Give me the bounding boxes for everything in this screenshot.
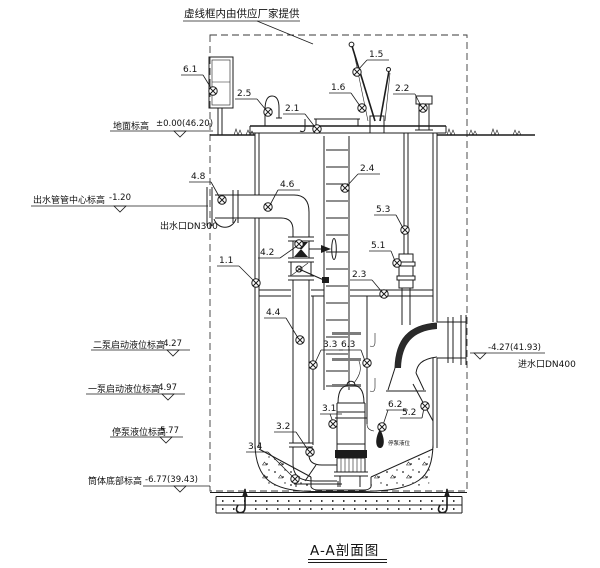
svg-text:3.4: 3.4 bbox=[248, 442, 263, 452]
ground-label: 地面标高 bbox=[113, 120, 149, 132]
svg-text:5.1: 5.1 bbox=[371, 241, 385, 251]
callout-5-2: 5.2 bbox=[400, 408, 424, 418]
supplier-note: 虚线框内由供应厂家提供 bbox=[183, 7, 313, 44]
svg-text:6.3: 6.3 bbox=[341, 340, 355, 350]
callout-5-3: 5.3 bbox=[374, 205, 403, 228]
svg-text:2.3: 2.3 bbox=[352, 270, 366, 280]
elevation-ground: 地面标高 ±0.00(46.20) bbox=[110, 119, 213, 137]
outlet-center-label: 出水管管中心标高 bbox=[33, 194, 105, 206]
callout-1-6: 1.6 bbox=[329, 83, 360, 106]
supplier-scope-box bbox=[210, 35, 467, 491]
callouts: 6.1 2.5 2.1 1.5 1.6 2.2 4.8 4.6 2.4 5.3 … bbox=[181, 50, 424, 477]
inlet-port-label: 进水口DN400 bbox=[518, 358, 576, 370]
vent-pipe bbox=[415, 96, 433, 130]
callout-6-1: 6.1 bbox=[181, 65, 211, 88]
svg-text:2.1: 2.1 bbox=[285, 104, 299, 114]
svg-text:2.2: 2.2 bbox=[395, 84, 409, 94]
svg-text:3.2: 3.2 bbox=[276, 422, 290, 432]
svg-text:5.2: 5.2 bbox=[402, 408, 416, 418]
elevation-inlet: -4.27(41.93) 进水口DN400 bbox=[470, 343, 576, 370]
section-drawing: 虚线框内由供应厂家提供 bbox=[0, 0, 600, 568]
svg-text:4.6: 4.6 bbox=[280, 180, 295, 190]
float-tag-text: 停泵液位 bbox=[388, 439, 411, 447]
anchor-bolt-right bbox=[438, 488, 450, 513]
foundation bbox=[210, 493, 467, 514]
drawing-title: A-A剖面图 bbox=[308, 543, 387, 563]
svg-text:4.2: 4.2 bbox=[260, 248, 274, 258]
outlet-pipe bbox=[207, 187, 309, 237]
svg-text:6.2: 6.2 bbox=[388, 400, 402, 410]
callout-5-1: 5.1 bbox=[369, 241, 395, 261]
elevation-outlet-center: 出水管管中心标高 -1.20 bbox=[31, 193, 208, 212]
tank-bottom-label: 筒体底部标高 bbox=[88, 475, 142, 487]
elevation-pump-stop: 停泵液位标高 -5.77 bbox=[110, 426, 183, 443]
pump1-start-value: -4.97 bbox=[155, 383, 177, 393]
tank-cover bbox=[250, 119, 446, 133]
outlet-port-label: 出水口DN300 bbox=[160, 220, 218, 232]
svg-text:2.4: 2.4 bbox=[360, 164, 375, 174]
float-cable: 停泵液位 bbox=[367, 296, 411, 448]
tank-bottom-value: -6.77(39.43) bbox=[145, 475, 198, 485]
callout-4-2: 4.2 bbox=[258, 246, 297, 258]
pump2-start-value: -4.27 bbox=[160, 339, 182, 349]
anchor-bolt-left bbox=[236, 488, 248, 513]
svg-text:1.6: 1.6 bbox=[331, 83, 346, 93]
pump-stop-value: -5.77 bbox=[157, 426, 179, 436]
svg-text:6.1: 6.1 bbox=[183, 65, 197, 75]
callout-1-1: 1.1 bbox=[217, 256, 254, 281]
inlet-value: -4.27(41.93) bbox=[488, 343, 541, 353]
supplier-note-text: 虚线框内由供应厂家提供 bbox=[184, 7, 300, 20]
svg-text:1.1: 1.1 bbox=[219, 256, 233, 266]
svg-text:1.5: 1.5 bbox=[369, 50, 383, 60]
callout-markers bbox=[209, 68, 429, 483]
outlet-center-value: -1.20 bbox=[109, 193, 131, 203]
svg-text:5.3: 5.3 bbox=[376, 205, 390, 215]
access-ladder bbox=[324, 136, 349, 390]
svg-text:2.5: 2.5 bbox=[237, 89, 251, 99]
svg-text:4.8: 4.8 bbox=[191, 172, 206, 182]
callout-2-4: 2.4 bbox=[347, 164, 380, 186]
callout-2-5: 2.5 bbox=[235, 89, 266, 110]
drawing-title-text: A-A剖面图 bbox=[310, 543, 379, 559]
callout-3-1: 3.1 bbox=[320, 404, 342, 422]
svg-text:3.3: 3.3 bbox=[323, 340, 337, 350]
callout-2-2: 2.2 bbox=[393, 84, 421, 106]
mid-platform bbox=[259, 290, 433, 296]
submersible-pump bbox=[334, 361, 368, 487]
callout-2-3: 2.3 bbox=[350, 270, 382, 292]
elevation-pump2-start: 二泵启动液位标高 -4.27 bbox=[91, 339, 190, 356]
elevation-pump1-start: 一泵启动液位标高 -4.97 bbox=[86, 383, 185, 400]
svg-text:3.1: 3.1 bbox=[322, 404, 336, 414]
callout-4-6: 4.6 bbox=[270, 180, 300, 205]
callout-4-8: 4.8 bbox=[189, 172, 220, 198]
callout-3-2: 3.2 bbox=[274, 422, 308, 450]
callout-1-5: 1.5 bbox=[358, 50, 389, 70]
svg-text:4.4: 4.4 bbox=[266, 308, 281, 318]
callout-6-3: 6.3 bbox=[339, 340, 365, 361]
pump2-start-label: 二泵启动液位标高 bbox=[93, 339, 165, 351]
pump1-start-label: 一泵启动液位标高 bbox=[88, 383, 160, 395]
ground-value: ±0.00(46.20) bbox=[156, 119, 213, 129]
float-switch bbox=[376, 429, 384, 448]
elevation-tank-bottom: 筒体底部标高 -6.77(39.43) bbox=[88, 475, 210, 492]
callout-2-1: 2.1 bbox=[283, 104, 315, 127]
